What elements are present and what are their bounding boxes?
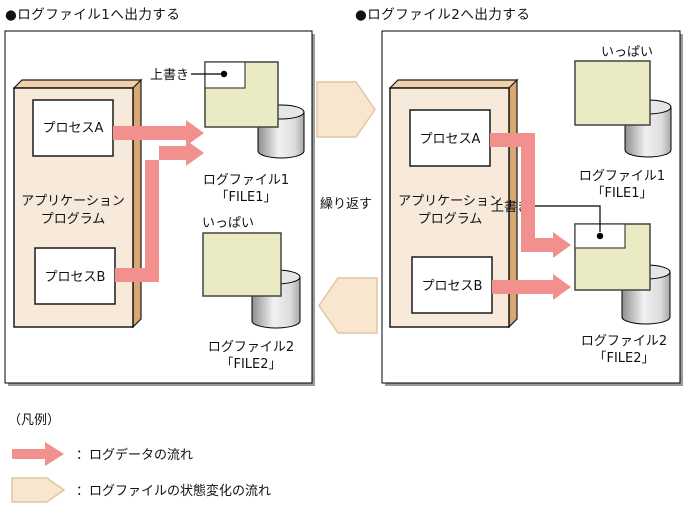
right-logfile2-filename: 「FILE2」 (593, 351, 654, 366)
left-logfile2-filename: 「FILE2」 (220, 357, 281, 372)
left-process-a-label: プロセスA (43, 121, 104, 136)
left-overwrite-label: 上書き (150, 68, 189, 83)
left-app-box-top-face (14, 80, 141, 88)
right-panel-title: ●ログファイル2へ出力する (355, 7, 530, 23)
left-panel-title: ●ログファイル1へ出力する (5, 7, 180, 23)
legend-data-flow-arrow-icon (12, 442, 64, 466)
left-logfile1-filename: 「FILE1」 (215, 190, 276, 205)
right-logfile1-square (575, 61, 650, 125)
legend-data-flow-label: ：ログデータの流れ (76, 447, 193, 463)
left-logfile1-name: ログファイル1 (203, 173, 289, 188)
state-change-arrow-left-icon (319, 278, 377, 333)
legend-state-flow-label: ：ログファイルの状態変化の流れ (76, 483, 271, 499)
right-logfile1-filename: 「FILE1」 (591, 186, 652, 201)
repeat-label: 繰り返す (320, 197, 372, 212)
legend-state-flow-arrow-icon (12, 478, 64, 502)
right-app-label-line2: プログラム (418, 212, 483, 227)
right-process-b-label: プロセスB (422, 279, 483, 294)
left-app-box-side-face (133, 80, 141, 327)
right-process-a-label: プロセスA (420, 132, 481, 147)
state-change-arrow-right-icon (317, 82, 375, 137)
left-app-label-line2: プログラム (41, 212, 106, 227)
right-overwrite-point-icon (597, 233, 603, 239)
left-process-b-label: プロセスB (45, 270, 106, 285)
left-application-box: アプリケーション プログラム プロセスA プロセスB (14, 80, 141, 327)
left-logfile2-square (203, 233, 281, 296)
legend-heading: （凡例） (8, 413, 60, 428)
legend: （凡例） ：ログデータの流れ ：ログファイルの状態変化の流れ (8, 413, 271, 502)
right-logfile1-name: ログファイル1 (579, 169, 665, 184)
left-logfile2-name: ログファイル2 (208, 340, 294, 355)
right-full-label: いっぱい (601, 45, 653, 60)
right-app-label-line1: アプリケーション (398, 194, 502, 209)
right-logfile2-name: ログファイル2 (581, 334, 667, 349)
left-full-label: いっぱい (202, 216, 254, 231)
right-app-box-top-face (390, 80, 517, 88)
left-overwrite-point-icon (221, 71, 227, 77)
left-app-label-line1: アプリケーション (21, 194, 125, 209)
log-output-diagram: ●ログファイル1へ出力する ●ログファイル2へ出力する アプリケーション プログ… (0, 0, 687, 508)
diagram-canvas: ●ログファイル1へ出力する ●ログファイル2へ出力する アプリケーション プログ… (0, 0, 687, 508)
